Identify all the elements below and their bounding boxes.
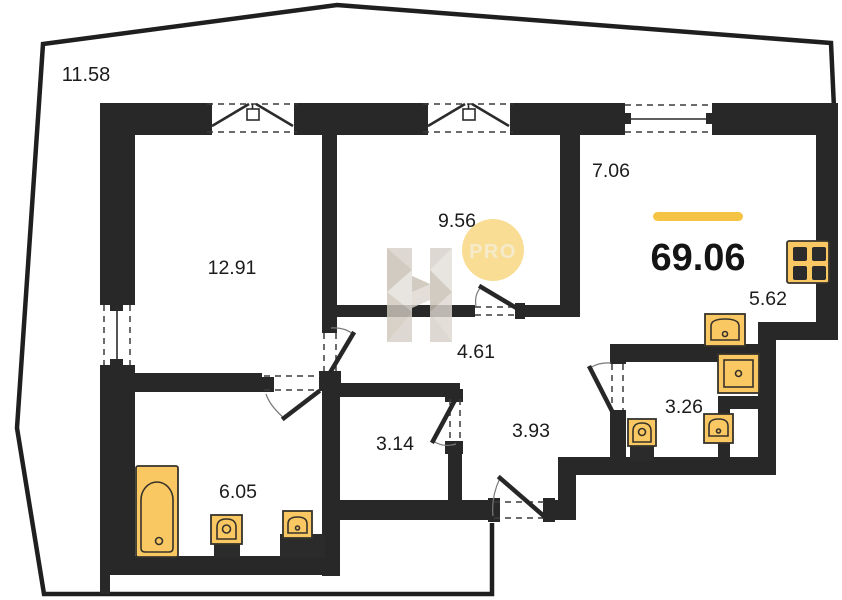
kitchen-sink-icon <box>705 314 745 346</box>
closet-door-post-bottom <box>445 441 463 454</box>
toilet-icon <box>628 419 656 461</box>
area-label-bathroom-big: 6.05 <box>219 481 257 503</box>
wall-center-vert-upper <box>322 135 337 333</box>
duct-shaft-inner <box>730 409 758 457</box>
wall-bottom <box>107 556 340 575</box>
floorplan: PRO 69.06 11.58 12.91 9.56 7.06 4.61 3.1… <box>0 0 842 600</box>
wall-bath2-bottom <box>558 457 776 475</box>
window-handle-icon <box>463 109 475 120</box>
wall-bath2-right <box>758 340 776 475</box>
window-top-2 <box>423 104 513 132</box>
room2-door-post <box>515 303 525 319</box>
wall-left-lower <box>100 365 135 556</box>
window2-post-right <box>510 103 519 135</box>
bathtub-icon <box>136 466 178 557</box>
window-top-3-fixed <box>625 105 712 132</box>
window1-post-left <box>203 103 212 135</box>
wall-right <box>816 135 838 340</box>
floorplan-page: PRO 69.06 11.58 12.91 9.56 7.06 4.61 3.1… <box>0 0 842 600</box>
area-label-bathroom-small: 3.26 <box>665 396 703 418</box>
toilet-icon <box>211 515 242 558</box>
total-area: 69.06 <box>650 212 745 279</box>
watermark-badge-text: PRO <box>469 241 517 263</box>
area-label-kitchen: 5.62 <box>749 288 787 310</box>
area-label-bedroom: 12.91 <box>208 257 257 279</box>
wall-left-upper <box>100 135 135 305</box>
window2-post-left <box>419 103 428 135</box>
area-label-closet: 3.14 <box>376 433 414 455</box>
area-label-living: 7.06 <box>592 160 630 182</box>
window1-post-right <box>294 103 303 135</box>
door-bedroom <box>324 328 353 371</box>
door-room2 <box>475 287 518 315</box>
shower-icon <box>718 354 759 393</box>
sink-icon <box>704 414 733 443</box>
total-area-value: 69.06 <box>650 237 745 279</box>
area-label-hall-upper: 4.61 <box>457 341 495 363</box>
wall-top-4 <box>712 103 838 135</box>
window-left <box>104 305 130 365</box>
wall-top-2 <box>297 103 423 135</box>
area-label-terrace: 11.58 <box>62 64 111 86</box>
wall-room2-right <box>560 135 580 317</box>
watermark: PRO <box>387 219 524 342</box>
wall-kitchen-step <box>758 322 838 340</box>
wall-bath2-left-upper <box>610 344 626 364</box>
window-handle-icon <box>247 109 259 120</box>
door-bathroom-small <box>590 363 623 411</box>
sink-icon <box>280 511 325 558</box>
window-top-1 <box>207 104 297 132</box>
wall-hall-bottom-1 <box>340 500 494 520</box>
wall-closet-top <box>330 383 460 397</box>
door-closet <box>433 399 460 445</box>
total-area-accent-bar <box>653 212 743 221</box>
watermark-letter-shape <box>387 248 452 342</box>
stove-icon <box>787 241 829 283</box>
door-entrance <box>493 478 548 518</box>
wall-bath2-left-lower <box>610 410 626 475</box>
area-label-hall-lower: 3.93 <box>512 420 550 442</box>
wall-top-1 <box>100 103 207 135</box>
wall-top-3 <box>513 103 625 135</box>
area-label-room2: 9.56 <box>438 210 476 232</box>
wall-bedroom-bottom <box>135 373 262 392</box>
